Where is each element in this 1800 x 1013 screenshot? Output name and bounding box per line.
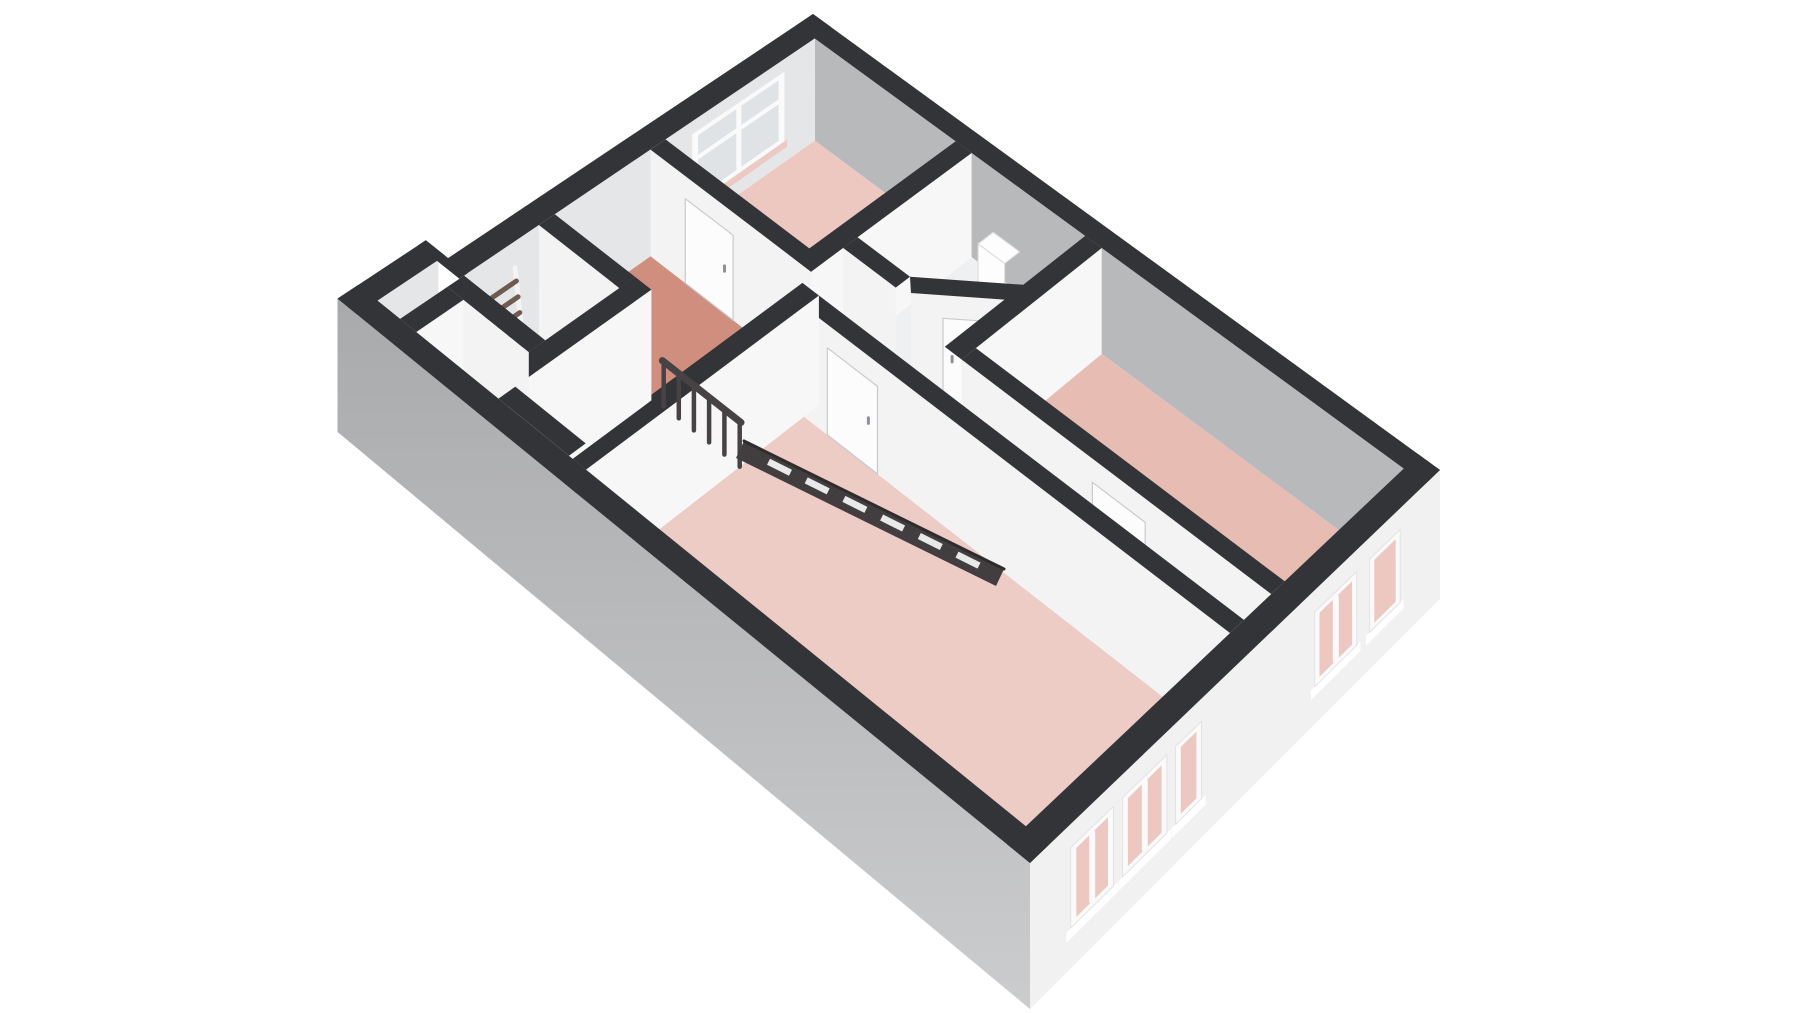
floorplan-3d-render <box>0 0 1800 1013</box>
floorplan-page <box>0 0 1800 1013</box>
